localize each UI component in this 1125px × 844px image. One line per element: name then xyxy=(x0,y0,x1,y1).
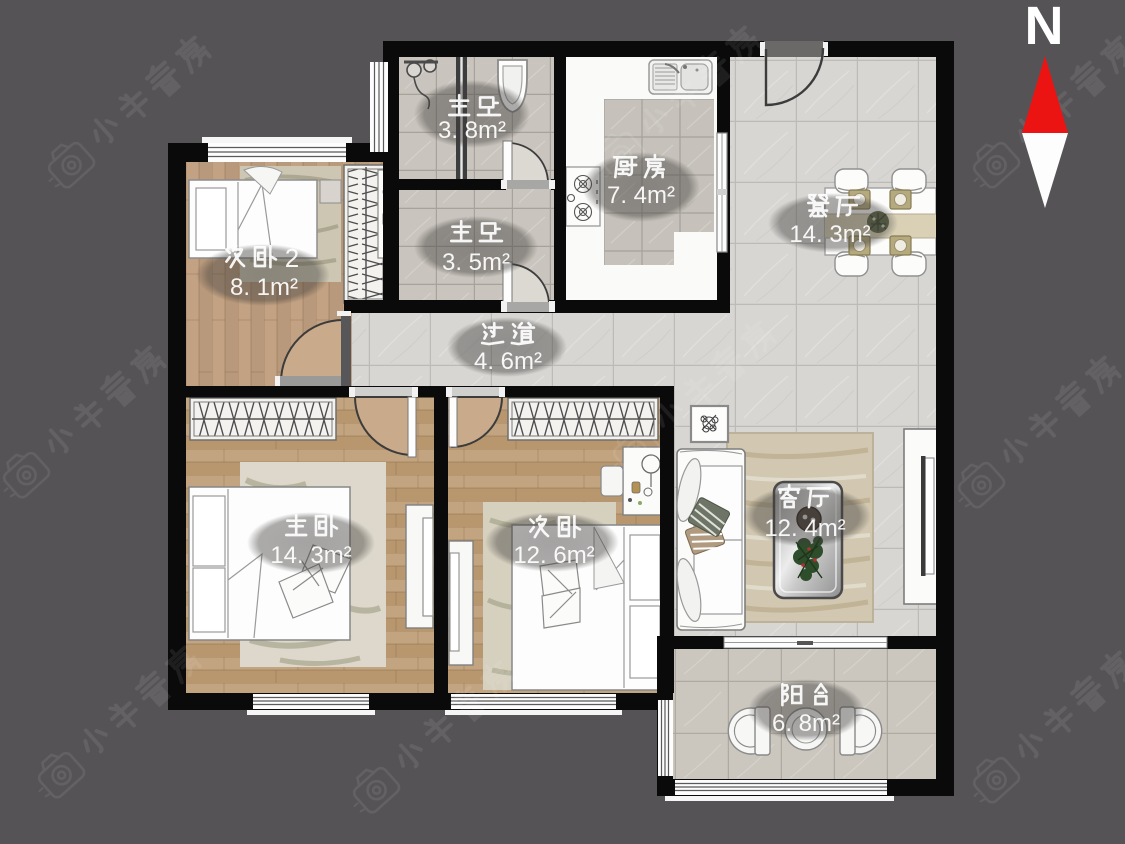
svg-text:6. 8m²: 6. 8m² xyxy=(772,710,840,737)
svg-text:4. 6m²: 4. 6m² xyxy=(474,348,542,375)
svg-text:2: 2 xyxy=(285,243,299,273)
svg-text:12. 6m²: 12. 6m² xyxy=(513,542,594,569)
svg-text:8. 1m²: 8. 1m² xyxy=(230,274,298,301)
svg-text:N: N xyxy=(1025,0,1064,56)
svg-text:3. 8m²: 3. 8m² xyxy=(438,117,506,144)
svg-text:14. 3m²: 14. 3m² xyxy=(789,221,870,248)
svg-text:12. 4m²: 12. 4m² xyxy=(764,515,845,542)
svg-text:14. 3m²: 14. 3m² xyxy=(270,542,351,569)
svg-text:7. 4m²: 7. 4m² xyxy=(607,182,675,209)
svg-text:3. 5m²: 3. 5m² xyxy=(442,249,510,276)
